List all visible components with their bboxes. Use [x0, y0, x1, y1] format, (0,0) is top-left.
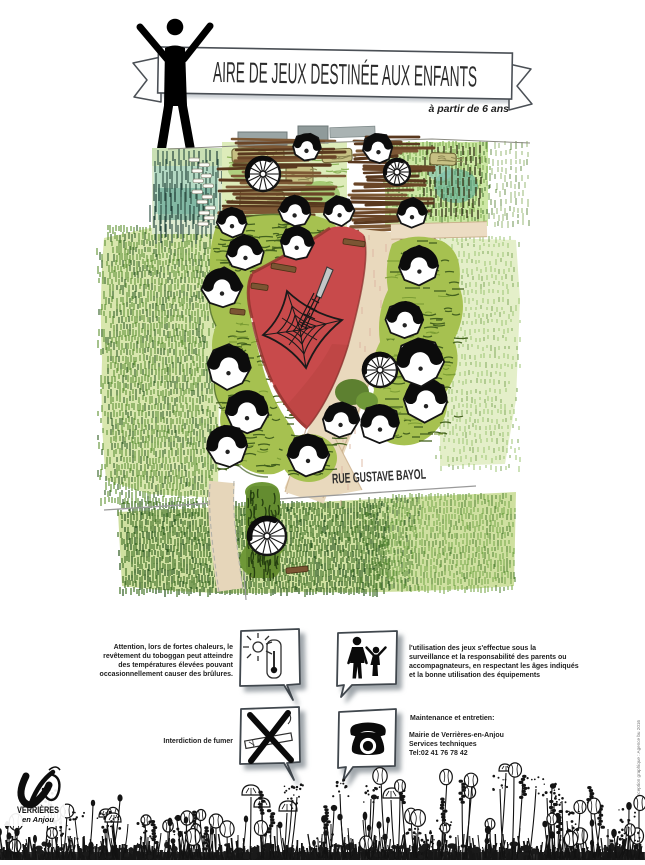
svg-text:Tel:02 41 76 78 42: Tel:02 41 76 78 42: [409, 750, 468, 757]
svg-text:Interdiction de fumer: Interdiction de fumer: [163, 738, 233, 745]
svg-text:en Anjou: en Anjou: [22, 815, 54, 824]
svg-text:Maintenance et entretien:: Maintenance et entretien:: [410, 715, 494, 722]
svg-text:et la bonne utilisation des éq: et la bonne utilisation des équipements: [409, 672, 540, 679]
svg-text:Attention, lors de fortes chal: Attention, lors de fortes chaleurs, le: [114, 644, 234, 651]
svg-text:revêtement du toboggan peut at: revêtement du toboggan peut atteindre: [103, 653, 233, 660]
svg-text:Mairie de Verrières-en-Anjou: Mairie de Verrières-en-Anjou: [409, 732, 504, 739]
svg-text:occasionnellement causer des b: occasionnellement causer des brûlures.: [100, 671, 233, 678]
svg-text:l'utilisation des jeux s'effec: l'utilisation des jeux s'effectue sous l…: [409, 645, 536, 652]
svg-text:Services techniques: Services techniques: [409, 741, 477, 748]
svg-text:des températures élevées pouva: des températures élevées pouvant: [118, 662, 233, 669]
svg-text:Conception graphique : Agence: Conception graphique : Agence bu 2016: [636, 720, 641, 802]
svg-text:accompagnateurs, en respectant: accompagnateurs, en respectant les âges …: [409, 663, 579, 670]
svg-text:à partir de 6 ans: à partir de 6 ans: [428, 103, 509, 115]
svg-text:AIRE DE JEUX DESTINÉE AUX ENFA: AIRE DE JEUX DESTINÉE AUX ENFANTS: [213, 56, 478, 94]
svg-text:surveillance et la responsabil: surveillance et la responsabilité des pa…: [409, 654, 567, 661]
